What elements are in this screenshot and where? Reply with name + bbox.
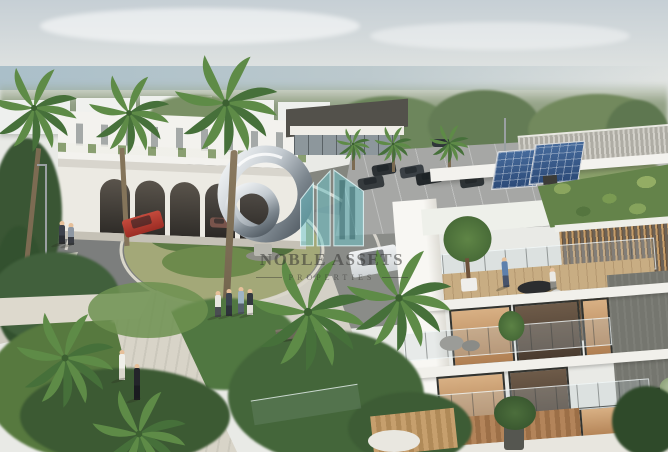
terrace-tree-pot bbox=[461, 278, 478, 292]
palm-icon bbox=[370, 124, 416, 164]
patio-pot-plant bbox=[494, 396, 536, 430]
brand-logo-icon bbox=[295, 166, 369, 248]
palm-icon bbox=[332, 126, 374, 162]
pedestrian bbox=[58, 221, 66, 244]
brand-tagline-row: PROPERTIES bbox=[224, 273, 440, 282]
pedestrian bbox=[237, 287, 245, 314]
logo-window-slot bbox=[339, 180, 345, 239]
lamp-arm bbox=[37, 164, 47, 166]
palm-icon bbox=[0, 62, 88, 154]
logo-middle-tower bbox=[317, 171, 330, 246]
patio-sofa bbox=[368, 430, 420, 452]
logo-right-tower bbox=[334, 170, 364, 246]
pedestrian bbox=[246, 289, 254, 315]
logo-window-slot bbox=[350, 187, 356, 240]
palm-icon bbox=[424, 122, 474, 164]
tagline-rule bbox=[382, 277, 408, 278]
palm-icon bbox=[164, 48, 288, 158]
brand-tagline: PROPERTIES bbox=[289, 273, 376, 282]
brand-name: NOBLE ASSETS bbox=[224, 251, 440, 270]
pedestrian bbox=[214, 291, 222, 317]
render-scene: NOBLE ASSETS PROPERTIES bbox=[0, 0, 668, 452]
logo-left-tower bbox=[301, 183, 314, 246]
watermark: NOBLE ASSETS PROPERTIES bbox=[224, 166, 440, 282]
pedestrian bbox=[118, 350, 126, 380]
terrace-person-seated bbox=[548, 267, 558, 290]
tagline-rule bbox=[256, 277, 282, 278]
garage-arch bbox=[170, 181, 200, 236]
pedestrian bbox=[133, 364, 141, 400]
pedestrian bbox=[67, 223, 75, 245]
pedestrian bbox=[225, 289, 233, 316]
